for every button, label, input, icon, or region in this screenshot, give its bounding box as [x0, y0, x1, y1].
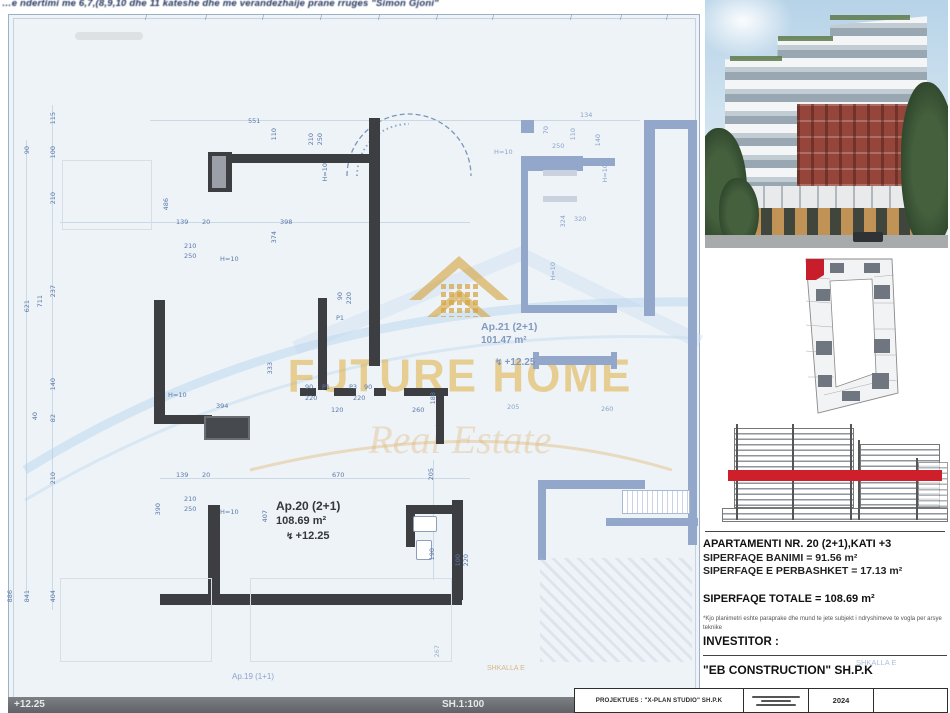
- apartment-details: APARTAMENTI NR. 20 (2+1),KATI +3 SIPERFA…: [703, 537, 948, 633]
- investor-name: "EB CONSTRUCTION" SH.P.K: [703, 663, 873, 677]
- year-cell: 2024: [808, 688, 874, 713]
- divider: [703, 655, 947, 656]
- tree: [901, 82, 948, 248]
- designer-cell: PROJEKTUES : "X-PLAN STUDIO" SH.P.K: [574, 688, 744, 713]
- eraser-smudge: [75, 32, 143, 40]
- stamp-line: [756, 704, 796, 706]
- lower-floor-band: [745, 186, 917, 210]
- details-line1: SIPERFAQE BANIMI = 91.56 m²: [703, 552, 948, 566]
- building-photo: [705, 0, 948, 248]
- elevation-base: [722, 508, 948, 522]
- details-total: SIPERFAQE TOTALE = 108.69 m²: [703, 592, 948, 607]
- details-title: APARTAMENTI NR. 20 (2+1),KATI +3: [703, 537, 948, 552]
- terrace-green: [730, 56, 782, 61]
- terrace-green: [778, 36, 833, 41]
- empty-cell: [873, 688, 948, 713]
- title-block: PROJEKTUES : "X-PLAN STUDIO" SH.P.K 2024: [575, 688, 948, 713]
- street: [705, 235, 948, 248]
- investor-label: INVESTITOR :: [703, 636, 779, 648]
- bar-scale: SH.1:100: [442, 699, 484, 710]
- storefront: [745, 208, 919, 238]
- site-key-plan: [772, 255, 948, 420]
- stamp-line: [761, 700, 791, 702]
- details-line2: SIPERFAQE E PERBASHKET = 17.13 m²: [703, 565, 948, 579]
- plan-panel: [8, 14, 700, 713]
- elevation-post: [916, 458, 918, 520]
- ap19-label: Ap.19 (1+1): [232, 672, 274, 681]
- details-note: *Kjo planimetri eshte paraprake dhe mund…: [703, 615, 943, 633]
- floor-level-red-line: [728, 470, 942, 481]
- stamp-cell: [743, 688, 809, 713]
- brick-facade: [797, 104, 915, 186]
- car: [853, 232, 883, 242]
- terrace-green: [830, 15, 910, 20]
- elevation-mass: [918, 462, 948, 508]
- section-elevation: [722, 422, 948, 528]
- top-note-text: …e ndertimi me 6,7,(8,9,10 dhe 11 katesh…: [2, 0, 702, 12]
- stair-label: SHKALLA E: [487, 665, 525, 672]
- floorplan-sheet: …e ndertimi me 6,7,(8,9,10 dhe 11 katesh…: [0, 0, 950, 713]
- stamp-line: [752, 696, 800, 698]
- bar-level: +12.25: [14, 699, 45, 710]
- scale-bar: +12.25 SH.1:100: [8, 697, 575, 713]
- divider: [705, 531, 945, 532]
- elevation-mass: [734, 428, 854, 508]
- watermark-window-grid: [441, 284, 479, 317]
